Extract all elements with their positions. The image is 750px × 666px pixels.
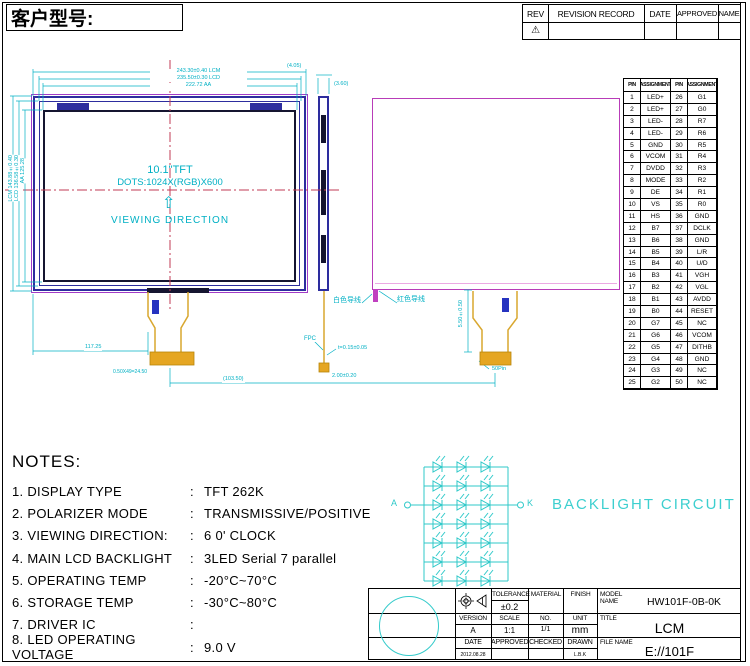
pin-assignment-cell: VGL <box>688 282 717 294</box>
unit-value: mm <box>563 625 597 636</box>
no-label: NO. <box>528 615 563 622</box>
dim-top-outer: 243.30±0.40 LCM <box>150 69 247 75</box>
pin-number-cell: 34 <box>671 187 688 199</box>
pin-assignment-cell: G7 <box>641 318 671 330</box>
pin-number-cell: 1 <box>624 92 641 104</box>
pin-assignment-cell: R6 <box>688 128 717 140</box>
scale-label: SCALE <box>491 615 528 622</box>
back-view-outline <box>372 98 620 290</box>
dim-fpc-offset: 117.25 <box>84 345 102 351</box>
backlight-circuit-title: BACKLIGHT CIRCUIT <box>552 497 736 512</box>
back-view-inner-line <box>375 283 617 284</box>
note-colon: : <box>190 551 204 566</box>
back-fpc-dim: 5.50±0.50 <box>459 300 465 327</box>
rev-col-header: NAME <box>718 5 740 22</box>
note-item: 4. MAIN LCD BACKLIGHT:3LED Serial 7 para… <box>12 547 380 569</box>
finish-label: FINISH <box>564 591 597 598</box>
tolerance-value: ±0.2 <box>491 602 528 612</box>
model-name-value: HW101F-0B-0K <box>629 596 739 608</box>
note-label: 8. LED OPERATING VOLTAGE <box>12 632 190 662</box>
side-view-segment <box>321 115 326 143</box>
note-value: TFT 262K <box>204 484 264 499</box>
approved-label: APPROVED <box>491 639 528 646</box>
pin-number-cell: 37 <box>671 223 688 235</box>
pin-assignment-cell: R0 <box>688 199 717 211</box>
pin-assignment-cell: LED- <box>641 116 671 128</box>
pin-number-cell: 15 <box>624 258 641 270</box>
pin-number-cell: 4 <box>624 128 641 140</box>
note-item: 3. VIEWING DIRECTION::6 0' CLOCK <box>12 525 380 547</box>
pin-number-cell: 44 <box>671 306 688 318</box>
note-value: -30°C~80°C <box>204 595 277 610</box>
rev-table-line <box>523 22 740 23</box>
revision-triangle-icon: ⚠ <box>523 22 548 39</box>
rev-col-header: APPROVED <box>676 5 718 22</box>
pin-number-cell: 24 <box>624 365 641 377</box>
pin-assignment-cell: B4 <box>641 258 671 270</box>
side-thickness: t=0.15±0.05 <box>337 346 368 352</box>
note-label: 7. DRIVER IC <box>12 617 190 632</box>
pin-number-cell: 8 <box>624 175 641 187</box>
pin-number-cell: 43 <box>671 294 688 306</box>
pin-assignment-cell: R1 <box>688 187 717 199</box>
pin-assignment-table: PINASSIGNMENTPINASSIGNMENT1LED+26G12LED+… <box>623 78 718 390</box>
rev-col-header: DATE <box>644 5 676 22</box>
pin-number-cell: 32 <box>671 163 688 175</box>
projection-symbol-icon <box>457 591 489 611</box>
pin-number-cell: 42 <box>671 282 688 294</box>
note-item: 5. OPERATING TEMP:-20°C~70°C <box>12 569 380 591</box>
note-colon: : <box>190 640 204 655</box>
note-label: 1. DISPLAY TYPE <box>12 484 190 499</box>
white-wire-label: 白色导线 <box>333 297 361 304</box>
pin-assignment-cell: R5 <box>688 140 717 152</box>
pin-number-cell: 6 <box>624 151 641 163</box>
pin-number-cell: 3 <box>624 116 641 128</box>
note-item: 2. POLARIZER MODE:TRANSMISSIVE/POSITIVE <box>12 502 380 524</box>
note-colon: : <box>190 617 204 632</box>
pin-number-cell: 49 <box>671 365 688 377</box>
drawn-label: DRAWN <box>563 639 597 646</box>
anode-label: A <box>391 499 397 508</box>
scale-value: 1:1 <box>491 626 528 635</box>
back-connector-label: 50Pin <box>491 367 507 373</box>
pin-assignment-cell: G4 <box>641 354 671 366</box>
date-label: DATE <box>455 639 491 646</box>
customer-model-box: 客户型号: <box>6 4 183 31</box>
pin-number-cell: 9 <box>624 187 641 199</box>
dim-span: (103.50) <box>222 377 245 383</box>
side-view-segment <box>321 235 326 263</box>
pin-number-cell: 48 <box>671 354 688 366</box>
side-fpc-label: FPC <box>303 336 317 342</box>
note-item: 1. DISPLAY TYPE:TFT 262K <box>12 480 380 502</box>
file-name-value: E://101F <box>597 644 742 659</box>
pin-assignment-cell: GND <box>688 235 717 247</box>
side-dim-top: (3.60) <box>333 82 349 88</box>
dim-corner: (4.05) <box>286 64 302 70</box>
pin-number-cell: 28 <box>671 116 688 128</box>
note-colon: : <box>190 528 204 543</box>
pin-assignment-cell: DE <box>641 187 671 199</box>
note-item: 8. LED OPERATING VOLTAGE:9.0 V <box>12 636 380 658</box>
notes-list: 1. DISPLAY TYPE:TFT 262K2. POLARIZER MOD… <box>12 480 380 658</box>
no-value: 1/1 <box>528 626 563 633</box>
pin-assignment-cell: B1 <box>641 294 671 306</box>
pin-number-cell: 30 <box>671 140 688 152</box>
pin-number-cell: 31 <box>671 151 688 163</box>
pin-assignment-cell: G0 <box>688 104 717 116</box>
note-colon: : <box>190 506 204 521</box>
pin-assignment-cell: GND <box>641 140 671 152</box>
pin-assignment-cell: VGH <box>688 270 717 282</box>
pin-number-cell: 17 <box>624 282 641 294</box>
company-stamp-circle <box>379 596 439 656</box>
pin-assignment-cell: NC <box>688 365 717 377</box>
pin-number-cell: 27 <box>671 104 688 116</box>
pin-number-cell: 38 <box>671 235 688 247</box>
pin-number-cell: 19 <box>624 306 641 318</box>
pin-assignment-cell: B7 <box>641 223 671 235</box>
note-label: 4. MAIN LCD BACKLIGHT <box>12 551 190 566</box>
note-value: -20°C~70°C <box>204 573 277 588</box>
cathode-label: K <box>527 499 533 508</box>
pin-assignment-cell: NC <box>688 318 717 330</box>
side-view-segment <box>321 170 326 215</box>
note-colon: : <box>190 573 204 588</box>
pin-number-cell: 23 <box>624 354 641 366</box>
pin-assignment-cell: L/R <box>688 247 717 259</box>
pin-table-header: PIN <box>671 79 688 92</box>
pin-number-cell: 33 <box>671 175 688 187</box>
version-value: A <box>455 626 491 635</box>
pin-assignment-cell: DITHB <box>688 342 717 354</box>
dim-left-inner: AA 125.28 <box>21 158 27 183</box>
pin-assignment-cell: R7 <box>688 116 717 128</box>
rev-col-header: REV <box>523 5 548 22</box>
pin-number-cell: 20 <box>624 318 641 330</box>
pin-assignment-cell: B3 <box>641 270 671 282</box>
pin-number-cell: 35 <box>671 199 688 211</box>
material-label: MATERIAL <box>529 591 563 598</box>
pin-assignment-cell: VCOM <box>641 151 671 163</box>
pin-assignment-cell: GND <box>688 354 717 366</box>
panel-dots-label: DOTS:1024X(RGB)X600 <box>90 178 250 188</box>
pin-number-cell: 39 <box>671 247 688 259</box>
pin-assignment-cell: B0 <box>641 306 671 318</box>
dim-top-inner: 222.72 AA <box>150 83 247 89</box>
note-item: 6. STORAGE TEMP:-30°C~80°C <box>12 591 380 613</box>
pin-assignment-cell: G2 <box>641 377 671 389</box>
model-name-label: MODEL NAME <box>600 591 628 605</box>
pin-assignment-cell: G5 <box>641 342 671 354</box>
pin-assignment-cell: HS <box>641 211 671 223</box>
pin-number-cell: 12 <box>624 223 641 235</box>
drawn-value: L.B.K <box>563 652 597 658</box>
pin-assignment-cell: B6 <box>641 235 671 247</box>
pin-number-cell: 41 <box>671 270 688 282</box>
note-value: 9.0 V <box>204 640 236 655</box>
rev-col-header: REVISION RECORD <box>548 5 644 22</box>
viewing-arrow-icon: ⇧ <box>162 196 175 212</box>
pin-assignment-cell: G1 <box>688 92 717 104</box>
pin-assignment-cell: B5 <box>641 247 671 259</box>
pin-assignment-cell: AVDD <box>688 294 717 306</box>
pin-number-cell: 7 <box>624 163 641 175</box>
viewing-direction-label: VIEWING DIRECTION <box>90 216 250 226</box>
tolerance-label: TOLERANCE <box>492 591 528 598</box>
pin-number-cell: 50 <box>671 377 688 389</box>
pin-assignment-cell: R2 <box>688 175 717 187</box>
pin-number-cell: 11 <box>624 211 641 223</box>
pin-assignment-cell: B2 <box>641 282 671 294</box>
title-block-line <box>491 600 528 601</box>
pin-assignment-cell: DVDD <box>641 163 671 175</box>
pin-assignment-cell: LED+ <box>641 92 671 104</box>
pin-number-cell: 40 <box>671 258 688 270</box>
note-label: 5. OPERATING TEMP <box>12 573 190 588</box>
checked-label: CHECKED <box>528 639 563 646</box>
pin-table-header: ASSIGNMENT <box>641 79 671 92</box>
panel-size-label: 10.1"TFT <box>90 165 250 176</box>
dim-top-mid: 235.50±0.30 LCD <box>150 76 247 82</box>
pin-assignment-cell: GND <box>688 211 717 223</box>
pin-number-cell: 2 <box>624 104 641 116</box>
pin-number-cell: 14 <box>624 247 641 259</box>
pin-assignment-cell: VS <box>641 199 671 211</box>
pin-number-cell: 22 <box>624 342 641 354</box>
pin-assignment-cell: LED+ <box>641 104 671 116</box>
note-value: 6 0' CLOCK <box>204 528 276 543</box>
pin-assignment-cell: LED- <box>641 128 671 140</box>
pin-assignment-cell: U/D <box>688 258 717 270</box>
pin-number-cell: 21 <box>624 330 641 342</box>
front-view-clip <box>250 103 282 110</box>
date-value: 2012.08.28 <box>455 652 491 658</box>
customer-model-label: 客户型号: <box>7 4 93 31</box>
note-label: 3. VIEWING DIRECTION: <box>12 528 190 543</box>
pin-assignment-cell: VCOM <box>688 330 717 342</box>
pin-number-cell: 16 <box>624 270 641 282</box>
note-value: TRANSMISSIVE/POSITIVE <box>204 506 371 521</box>
title-block-line <box>455 648 597 649</box>
pin-number-cell: 29 <box>671 128 688 140</box>
pin-number-cell: 46 <box>671 330 688 342</box>
pin-number-cell: 36 <box>671 211 688 223</box>
pin-number-cell: 18 <box>624 294 641 306</box>
note-label: 2. POLARIZER MODE <box>12 506 190 521</box>
drawing-sheet: 客户型号: REV REVISION RECORD DATE APPROVED … <box>0 0 750 666</box>
title-value: LCM <box>597 620 742 636</box>
title-block: TOLERANCE ±0.2 MATERIAL FINISH MODEL NAM… <box>368 588 741 660</box>
pin-assignment-cell: G3 <box>641 365 671 377</box>
pin-number-cell: 5 <box>624 140 641 152</box>
inner-right-border <box>740 2 741 662</box>
side-dim-bottom: 2.00±0.20 <box>331 374 357 380</box>
pin-number-cell: 10 <box>624 199 641 211</box>
pin-table-header: ASSIGNMENT <box>688 79 717 92</box>
pin-assignment-cell: R3 <box>688 163 717 175</box>
pin-number-cell: 45 <box>671 318 688 330</box>
pin-number-cell: 25 <box>624 377 641 389</box>
pin-assignment-cell: G6 <box>641 330 671 342</box>
pin-number-cell: 47 <box>671 342 688 354</box>
pin-number-cell: 26 <box>671 92 688 104</box>
notes-section: NOTES: 1. DISPLAY TYPE:TFT 262K2. POLARI… <box>12 452 380 658</box>
pin-assignment-cell: NC <box>688 377 717 389</box>
version-label: VERSION <box>455 615 491 622</box>
pin-number-cell: 13 <box>624 235 641 247</box>
pin-assignment-cell: DCLK <box>688 223 717 235</box>
note-colon: : <box>190 484 204 499</box>
revision-table: REV REVISION RECORD DATE APPROVED NAME ⚠ <box>522 4 741 40</box>
pin-table-header: PIN <box>624 79 641 92</box>
note-colon: : <box>190 595 204 610</box>
pin-assignment-cell: MODE <box>641 175 671 187</box>
note-label: 6. STORAGE TEMP <box>12 595 190 610</box>
front-fpc-exit <box>147 288 209 293</box>
front-view-clip <box>57 103 89 110</box>
unit-label: UNIT <box>563 615 597 622</box>
red-wire-label: 红色导线 <box>397 296 425 303</box>
notes-title: NOTES: <box>12 452 380 472</box>
dim-pitch: 0.50X49=24.50 <box>112 370 148 375</box>
pin-assignment-cell: RESET <box>688 306 717 318</box>
note-value: 3LED Serial 7 parallel <box>204 551 336 566</box>
pin-assignment-cell: R4 <box>688 151 717 163</box>
